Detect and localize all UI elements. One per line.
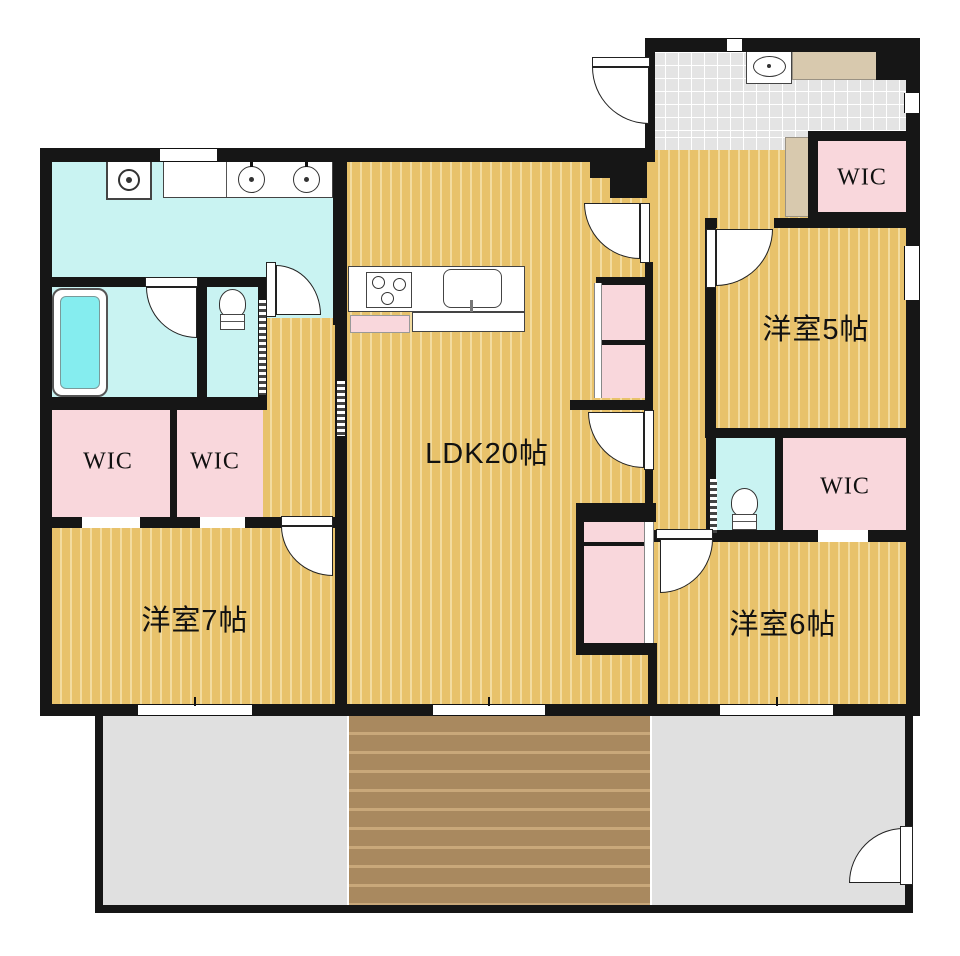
vanity-sink-drain-icon — [249, 177, 254, 182]
wall-left — [40, 148, 52, 716]
stove-burner2-icon — [393, 278, 406, 291]
wall-wic1-wic2 — [170, 397, 177, 517]
front-door-leaf — [592, 57, 650, 67]
wall-western6-left — [648, 643, 657, 711]
wall-wetblock-bottom — [40, 397, 267, 410]
stove-burner3-icon — [381, 292, 394, 305]
wall-closet-lower-top — [576, 503, 656, 522]
stove-burner1-icon — [372, 276, 385, 289]
toilet1-folding-door — [259, 300, 266, 395]
wall-closet-upper-divider — [602, 340, 645, 345]
wood-deck — [347, 716, 652, 905]
toilet2-bowl-icon — [731, 488, 758, 517]
wall-washroom-bath-b — [197, 277, 267, 287]
western5-door-leaf — [706, 229, 716, 288]
toilet2-tank-line — [733, 521, 756, 522]
closet-lower-cell2 — [584, 546, 644, 643]
floor-plan: LDK20帖 洋室7帖 洋室6帖 洋室5帖 WIC WIC WIC WIC — [0, 0, 960, 956]
corridor-folding-door — [337, 381, 345, 436]
window-western6-mullion — [776, 697, 778, 706]
toilet1-tank-icon — [220, 314, 245, 330]
closet-upper-sliding-door — [594, 283, 602, 398]
closet-lower-sliding-door — [644, 522, 654, 643]
wall-right — [906, 38, 920, 716]
wall-western5-bottom — [705, 428, 908, 438]
window-western7-mullion — [194, 697, 196, 706]
western6-door-leaf — [656, 529, 713, 539]
window-ldk-mullion — [488, 697, 490, 706]
wall-bath-toilet — [197, 277, 207, 397]
washroom-door-leaf — [266, 262, 276, 317]
closet-upper-cell2 — [602, 345, 645, 398]
wall-kitchen-divider — [333, 155, 347, 325]
closet-upper-cell1 — [602, 283, 645, 340]
wall-step-block-a — [590, 150, 647, 178]
window-western5-right — [904, 246, 920, 300]
front-door-swing — [592, 67, 649, 124]
bathroom-door-leaf — [145, 277, 198, 287]
wic2-opening — [200, 517, 245, 528]
entrance-tile-step — [652, 137, 785, 150]
hall-ldk-door1-leaf — [640, 203, 650, 263]
hall-ldk-door2-leaf — [644, 410, 654, 470]
balcony-wall-left — [95, 716, 103, 913]
wall-wic4-bottom — [808, 212, 908, 222]
vanity-sink2-drain-icon — [304, 177, 309, 182]
bathtub-water — [60, 296, 100, 389]
wall-top-main — [40, 148, 655, 162]
wic2-label: WIC — [190, 449, 240, 476]
wall-western6-top-c — [868, 530, 908, 542]
balcony-door-leaf — [900, 826, 913, 885]
wall-hall-west-a — [645, 262, 653, 283]
closet-lower-cell1 — [584, 522, 644, 542]
wall-step-block-b — [610, 178, 647, 198]
window-entrance-top — [727, 38, 742, 52]
wic3-label: WIC — [820, 474, 870, 501]
ldk-label: LDK20帖 — [425, 430, 549, 472]
wall-western6-top-b — [713, 530, 818, 542]
wall-wic4-left — [808, 131, 818, 222]
entrance-sink-drain-icon — [767, 64, 771, 68]
window-entrance-right — [904, 93, 920, 113]
wic1-label: WIC — [83, 449, 133, 476]
window-top-washroom — [160, 148, 217, 162]
wall-closet-upper-bottom — [570, 400, 653, 410]
entrance-counter — [792, 50, 878, 80]
wall-toilet2-wic3 — [775, 437, 783, 537]
vanity-divider — [226, 161, 227, 197]
wic4-label: WIC — [837, 165, 887, 192]
toilet2-folding-door — [710, 479, 717, 533]
western6-label: 洋室6帖 — [729, 601, 836, 643]
wall-closet-lower-bottom — [576, 643, 657, 655]
washing-machine-dot-icon — [126, 177, 132, 183]
wic3-opening — [818, 530, 868, 542]
wall-closet-upper-right — [645, 283, 653, 400]
shoe-cabinet — [785, 137, 810, 217]
western5-label: 洋室5帖 — [762, 306, 869, 348]
wic1-opening — [82, 517, 140, 528]
toilet2-tank-icon — [732, 514, 757, 530]
toilet1-tank-line — [221, 321, 244, 322]
wall-wic4-top — [808, 131, 908, 141]
wall-closet-lower-divider — [584, 542, 644, 546]
wall-closet-lower-left — [576, 503, 584, 650]
kitchen-lower-counter — [412, 312, 525, 332]
western7-door-leaf — [281, 516, 333, 526]
kitchen-side-cabinet — [350, 315, 410, 333]
balcony-wall-bottom — [95, 905, 913, 913]
western7-label: 洋室7帖 — [141, 597, 248, 639]
wall-washroom-bath-a — [40, 277, 145, 287]
wall-top-entrance — [645, 38, 920, 52]
